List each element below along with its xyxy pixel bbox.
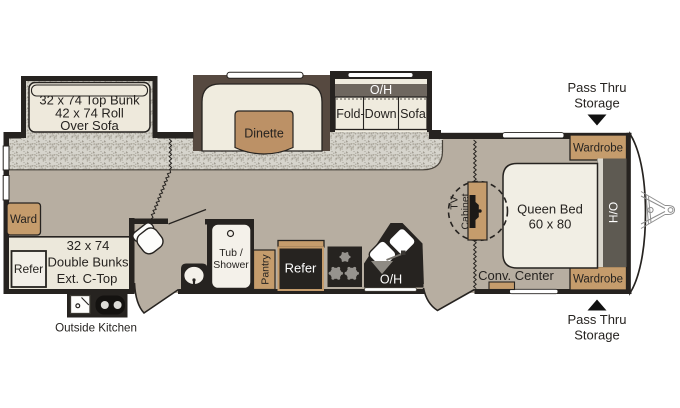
svg-text:Wardrobe: Wardrobe (573, 143, 623, 155)
svg-text:Queen Bed: Queen Bed (517, 202, 583, 217)
svg-text:32 x 74: 32 x 74 (67, 238, 110, 253)
svg-text:Cabinet: Cabinet (460, 193, 472, 229)
svg-text:Outside Kitchen: Outside Kitchen (55, 322, 137, 335)
svg-text:Double Bunks: Double Bunks (48, 255, 129, 270)
svg-text:Tub /: Tub / (219, 247, 243, 259)
svg-text:Pass Thru: Pass Thru (567, 312, 626, 327)
svg-text:Conv. Center: Conv. Center (478, 268, 554, 283)
svg-text:O/H: O/H (380, 273, 402, 287)
svg-text:Refer: Refer (285, 261, 317, 276)
svg-text:Ward: Ward (10, 214, 37, 226)
svg-text:Refer: Refer (14, 262, 43, 276)
svg-text:Storage: Storage (574, 328, 620, 343)
svg-text:Over Sofa: Over Sofa (60, 118, 119, 133)
svg-text:Pass Thru: Pass Thru (567, 80, 626, 95)
svg-text:Storage: Storage (574, 96, 620, 111)
svg-text:Dinette: Dinette (244, 127, 284, 141)
svg-text:Shower: Shower (213, 259, 249, 271)
svg-text:Fold-Down Sofa: Fold-Down Sofa (336, 107, 426, 121)
svg-text:Pantry: Pantry (260, 254, 272, 285)
svg-text:O/H: O/H (370, 83, 392, 97)
svg-text:Wardrobe: Wardrobe (573, 274, 623, 286)
svg-text:H/O: H/O (607, 202, 621, 223)
svg-text:Ext. C-Top: Ext. C-Top (57, 271, 118, 286)
svg-text:60 x 80: 60 x 80 (529, 217, 572, 232)
